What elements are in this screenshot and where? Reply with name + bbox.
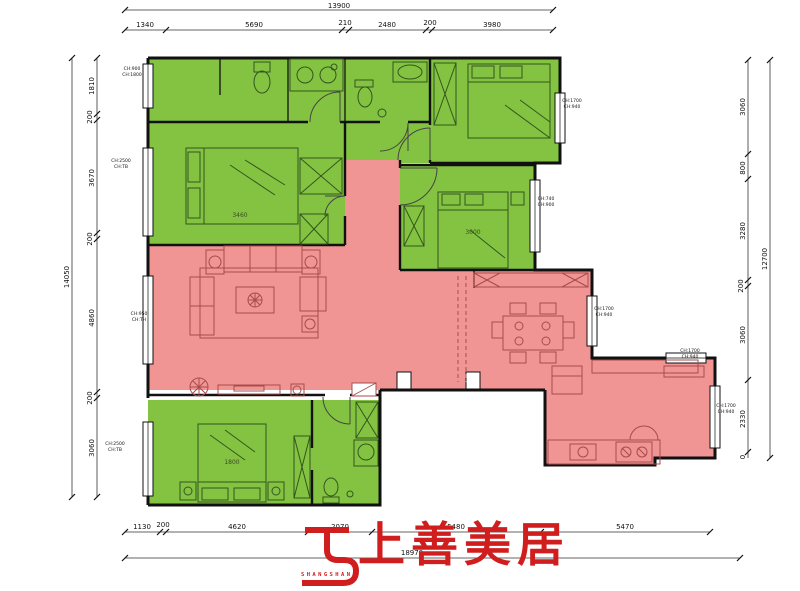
dim-seg: 1130: [133, 523, 151, 531]
window-label: CH:940: [564, 104, 581, 110]
dim-seg: 3280: [739, 222, 747, 240]
window-label: CH:940: [718, 409, 735, 415]
dim-seg: 200: [86, 232, 94, 245]
dim-seg: 200: [86, 391, 94, 404]
dim-seg: 3060: [739, 326, 747, 344]
window-label: CH:2500: [111, 158, 131, 164]
logo-english-line1: SHANGSHAN: [301, 572, 352, 578]
shoe-cabinet: [352, 383, 376, 396]
dim-seg: 2480: [378, 21, 396, 29]
dim-seg: 4620: [228, 523, 246, 531]
window-label: CH:TB: [108, 447, 122, 453]
bed-left-dim: 3460: [232, 212, 247, 219]
window-label: CH:740: [538, 196, 555, 202]
window-label: CH:950: [131, 311, 148, 317]
dim-seg: 3670: [88, 169, 96, 187]
dim-seg: 200: [156, 521, 169, 529]
dim-seg: 200: [86, 110, 94, 123]
window-left-top: [143, 64, 153, 108]
dim-seg: 2330: [739, 410, 747, 428]
floorplan-canvas: 3460 3000 1800 CH:900 CH:1800 CH:2500 CH…: [0, 0, 800, 591]
room-bathroom-2: [345, 58, 430, 123]
dim-seg: 200: [737, 279, 745, 292]
window-label: CH:1700: [716, 403, 736, 409]
dim-seg: 5470: [616, 523, 634, 531]
dim-top-total: 13900: [328, 2, 350, 10]
dim-seg: 0: [739, 455, 747, 459]
window-suite: [143, 422, 153, 496]
dim-right-total: 12700: [761, 248, 769, 270]
window-label: CH:900: [124, 66, 141, 72]
bed-suite-dim: 1800: [224, 459, 239, 466]
dim-left-total: 14050: [63, 266, 71, 288]
dim-seg: 800: [739, 161, 747, 174]
room-bedroom-suite: [148, 400, 380, 505]
dim-seg: 3980: [483, 21, 501, 29]
dim-seg: 3060: [739, 98, 747, 116]
dim-seg: 200: [423, 19, 436, 27]
room-bedroom-mid: [400, 165, 535, 270]
dim-seg: 1340: [136, 21, 154, 29]
window-label: CH:TH: [132, 317, 146, 323]
window-label: CH:940: [682, 354, 699, 360]
dim-seg: 1810: [88, 77, 96, 95]
window-label: CH:1700: [594, 306, 614, 312]
window-kitchen-right: [710, 386, 720, 448]
window-label: CH:900: [538, 202, 555, 208]
dim-seg: 210: [338, 19, 351, 27]
window-bedroom-mid: [530, 180, 540, 252]
dim-seg: 4860: [88, 309, 96, 327]
bed-mid-dim: 3000: [465, 229, 480, 236]
dim-seg: 3060: [88, 439, 96, 457]
room-bedroom-left: [148, 122, 345, 245]
dim-seg: 5690: [245, 21, 263, 29]
logo-chinese-text: 上善美居: [358, 522, 578, 569]
dim-left: 14050 1810 200 3670 200 4860 200 3060: [63, 55, 100, 500]
window-label: CH:1700: [680, 348, 700, 354]
window-label: CH:2500: [105, 441, 125, 447]
room-master-bedroom: [430, 58, 560, 163]
window-label: CH:TB: [114, 164, 128, 170]
floorplan-drawing: 3460 3000 1800 CH:900 CH:1800 CH:2500 CH…: [0, 0, 800, 591]
dim-right: 3060 800 3280 200 3060 2330 0 12700: [737, 57, 773, 461]
window-bedroom-left: [143, 148, 153, 236]
window-dining: [587, 296, 597, 346]
window-label: CH:940: [596, 312, 613, 318]
logo-english-line2: MEIJU: [313, 581, 350, 587]
dim-top: 13900 1340 5690 210 2480 200 3980: [122, 2, 556, 33]
room-corridor-green: [345, 123, 430, 163]
window-label: CH:1700: [562, 98, 582, 104]
window-label: CH:1800: [122, 72, 142, 78]
